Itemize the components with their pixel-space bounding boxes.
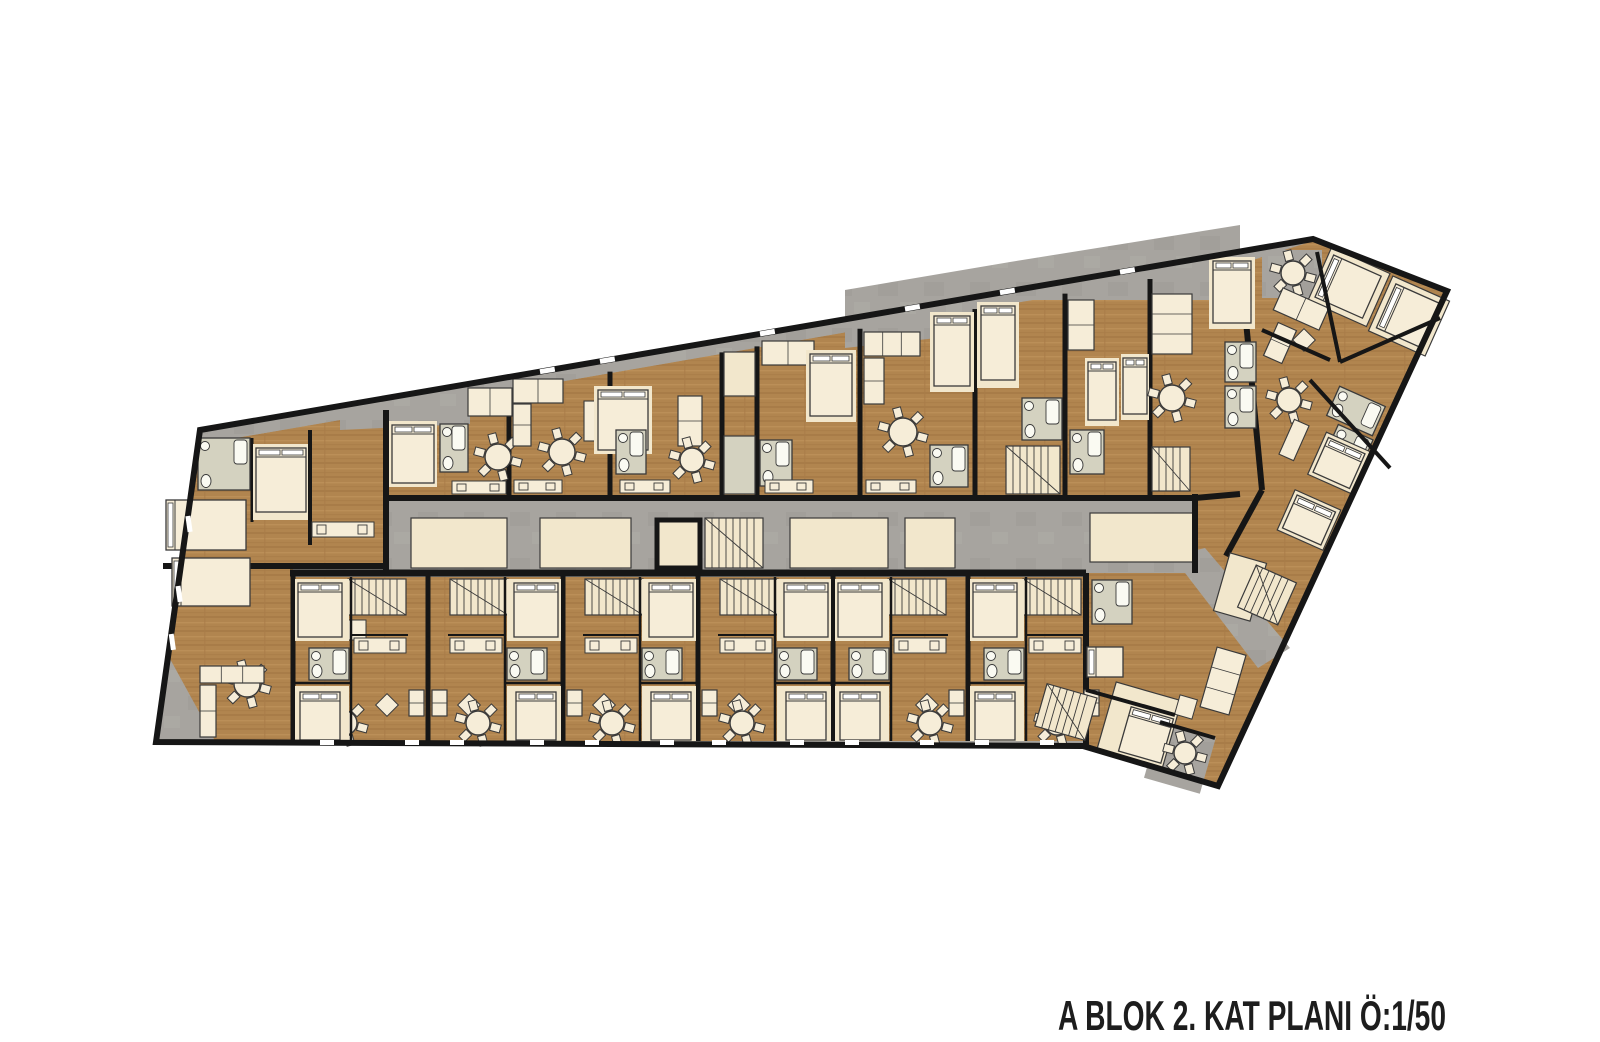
svg-text:A BLOK 2. KAT PLANI Ö:1/50: A BLOK 2. KAT PLANI Ö:1/50 bbox=[1058, 992, 1446, 1039]
